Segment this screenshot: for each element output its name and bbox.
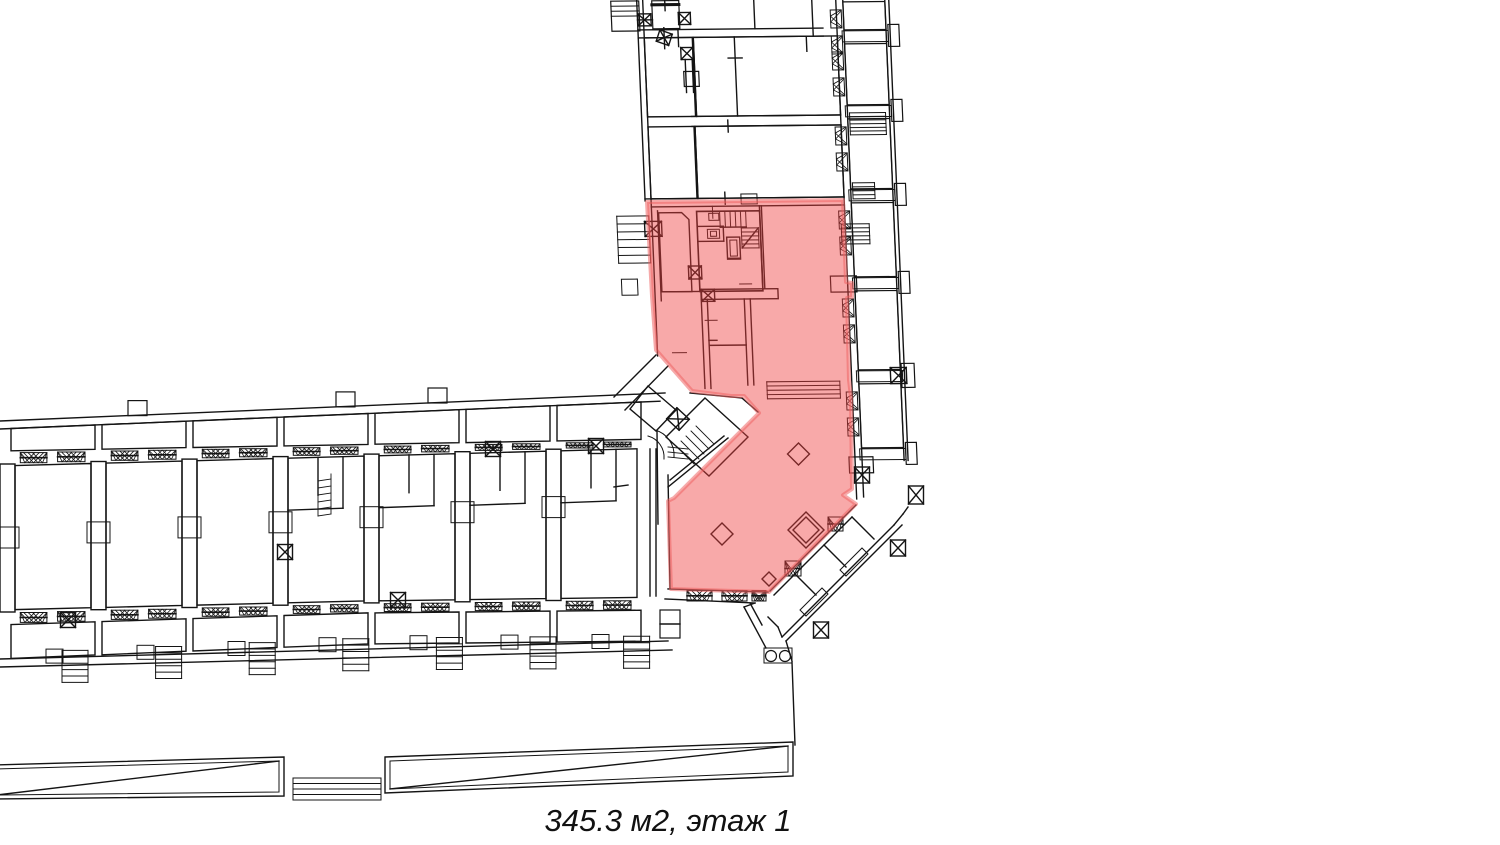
svg-text:345.3 м2, этаж 1: 345.3 м2, этаж 1 bbox=[544, 803, 791, 838]
